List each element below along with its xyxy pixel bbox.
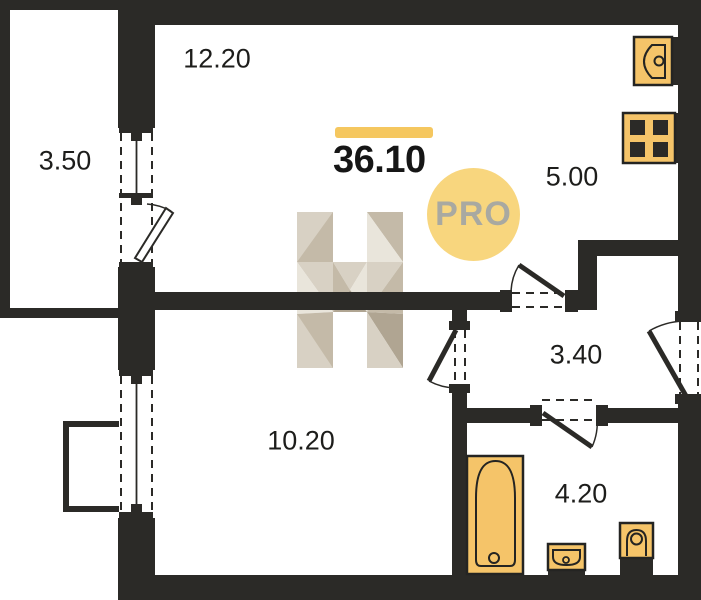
- living-bedroom-wall: [118, 292, 500, 310]
- bedroom-door-jamb-top: [449, 321, 470, 330]
- stove-icon: [623, 113, 682, 163]
- room-label-balcony: 3.50: [39, 146, 92, 177]
- bedroom-window: [121, 376, 152, 512]
- total-area-label: 36.10: [333, 139, 426, 182]
- kitchen-door-jamb-left: [500, 290, 512, 312]
- floor-plan-canvas: 36.10 PRO 12.20 3.50 5.00 3.40 10.20 4.2…: [0, 0, 701, 600]
- room-label-kitchen-zone: 5.00: [546, 162, 599, 193]
- bedroom-window-handle-top: [131, 376, 142, 384]
- entrance-door-jamb-bottom: [675, 394, 701, 404]
- bathtub-icon: [467, 456, 523, 574]
- kitchen-hall-door: [511, 265, 565, 307]
- room-label-bedroom: 10.20: [267, 426, 335, 457]
- bedroom-window-handle-bottom: [131, 504, 142, 512]
- right-wall-lower: [678, 398, 701, 600]
- total-area-accent-bar: [335, 127, 433, 138]
- bedroom-hall-wall: [452, 393, 467, 575]
- room-label-hallway: 3.40: [550, 340, 603, 371]
- bedroom-window-sill-top: [119, 370, 153, 376]
- floor-plan-drawing: [0, 0, 701, 600]
- kitchen-door-jamb-right: [565, 290, 578, 312]
- left-wall-middle: [118, 267, 155, 370]
- exterior-basket: [66, 424, 119, 509]
- bedroom-door: [429, 330, 465, 388]
- entrance-door-jamb-top: [675, 311, 701, 322]
- bottom-wall: [118, 575, 701, 600]
- balcony-top-wall: [0, 0, 119, 10]
- pro-badge-label: PRO: [435, 195, 512, 234]
- balcony-window-handle-mid: [131, 198, 142, 205]
- balcony-door-sill: [119, 262, 153, 267]
- balcony-bottom-wall: [0, 308, 119, 318]
- room-label-bathroom: 4.20: [555, 479, 608, 510]
- kitchen-sink-icon: [634, 37, 680, 85]
- toilet-icon: [620, 523, 653, 577]
- bathroom-door-jamb-left: [530, 405, 542, 426]
- kitchen-bottom-wall: [597, 240, 678, 256]
- left-wall-upper: [118, 0, 155, 128]
- bedroom-window-sill-bottom: [119, 512, 153, 518]
- entrance-door: [649, 321, 698, 396]
- room-label-living-kitchen: 12.20: [183, 44, 251, 75]
- kitchen-step-wall: [578, 240, 597, 310]
- balcony-door: [135, 204, 173, 262]
- left-wall-lower: [118, 518, 155, 600]
- balcony-left-wall: [0, 0, 10, 318]
- bedroom-hall-wall-stub: [452, 310, 467, 322]
- pro-badge: PRO: [427, 168, 520, 261]
- bathroom-wall-left: [467, 408, 532, 423]
- balcony-window-sill-mid: [119, 193, 153, 198]
- bathroom-door: [542, 400, 597, 447]
- balcony-window-handle-top: [131, 133, 142, 141]
- h-logo-watermark-icon: [297, 212, 403, 368]
- top-wall: [119, 0, 701, 25]
- washbasin-icon: [548, 544, 585, 579]
- balcony-window-sill-top: [119, 128, 153, 133]
- bathroom-wall-right: [606, 408, 678, 423]
